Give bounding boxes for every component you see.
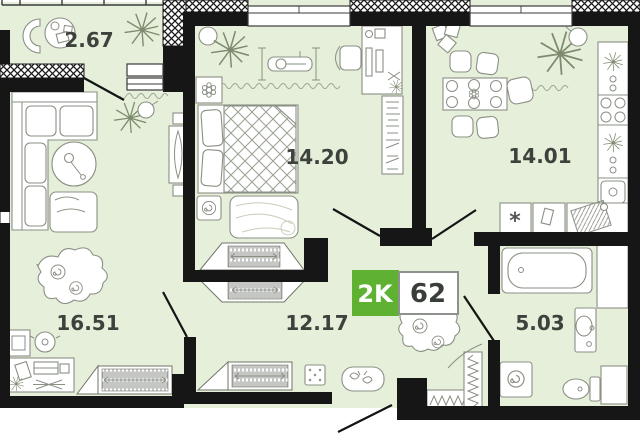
room-label-bathroom: 5.03: [515, 311, 564, 335]
lamp: [199, 27, 217, 45]
entrance-door-swing: [338, 405, 392, 432]
kitchen-counter: [598, 42, 628, 205]
desk-chair: [340, 46, 361, 70]
room-label-bedroom: 14.20: [285, 145, 348, 169]
bed: [198, 105, 298, 193]
bathtub: [502, 248, 592, 293]
unit-type-label: 2K: [357, 280, 394, 308]
dining-table: [443, 78, 507, 110]
fridge-asterisk: *: [509, 209, 521, 234]
pet-bed: [197, 196, 221, 220]
round-rug: [52, 142, 96, 186]
small-sink: [601, 181, 625, 203]
watering-can: [569, 28, 587, 46]
floor-plan: *: [0, 0, 640, 433]
bathroom-sink: [575, 308, 596, 352]
side-cabinet: [8, 330, 30, 356]
kitchen-window: [470, 6, 572, 26]
unit-badge: 2K 62: [352, 270, 458, 316]
watering-can: [138, 102, 154, 118]
room-label-balcony: 2.67: [64, 28, 113, 52]
bathroom-cabinet: [601, 366, 627, 404]
unit-area-value: 62: [410, 279, 446, 309]
duct-shaft: [597, 240, 628, 308]
toilet: [563, 377, 600, 401]
nightstand: [196, 77, 222, 103]
room-label-living: 16.51: [56, 311, 119, 335]
room-label-kitchen: 14.01: [508, 144, 571, 168]
pillow-chair: [506, 76, 535, 105]
floor-plan-canvas: *: [0, 0, 640, 433]
pot: [35, 332, 55, 352]
wall-vent: [1, 212, 10, 223]
bedroom-window: [248, 6, 350, 26]
room-label-hallway: 12.17: [285, 311, 348, 335]
floor-lamp: [65, 154, 74, 163]
washing-machine: [500, 362, 532, 397]
